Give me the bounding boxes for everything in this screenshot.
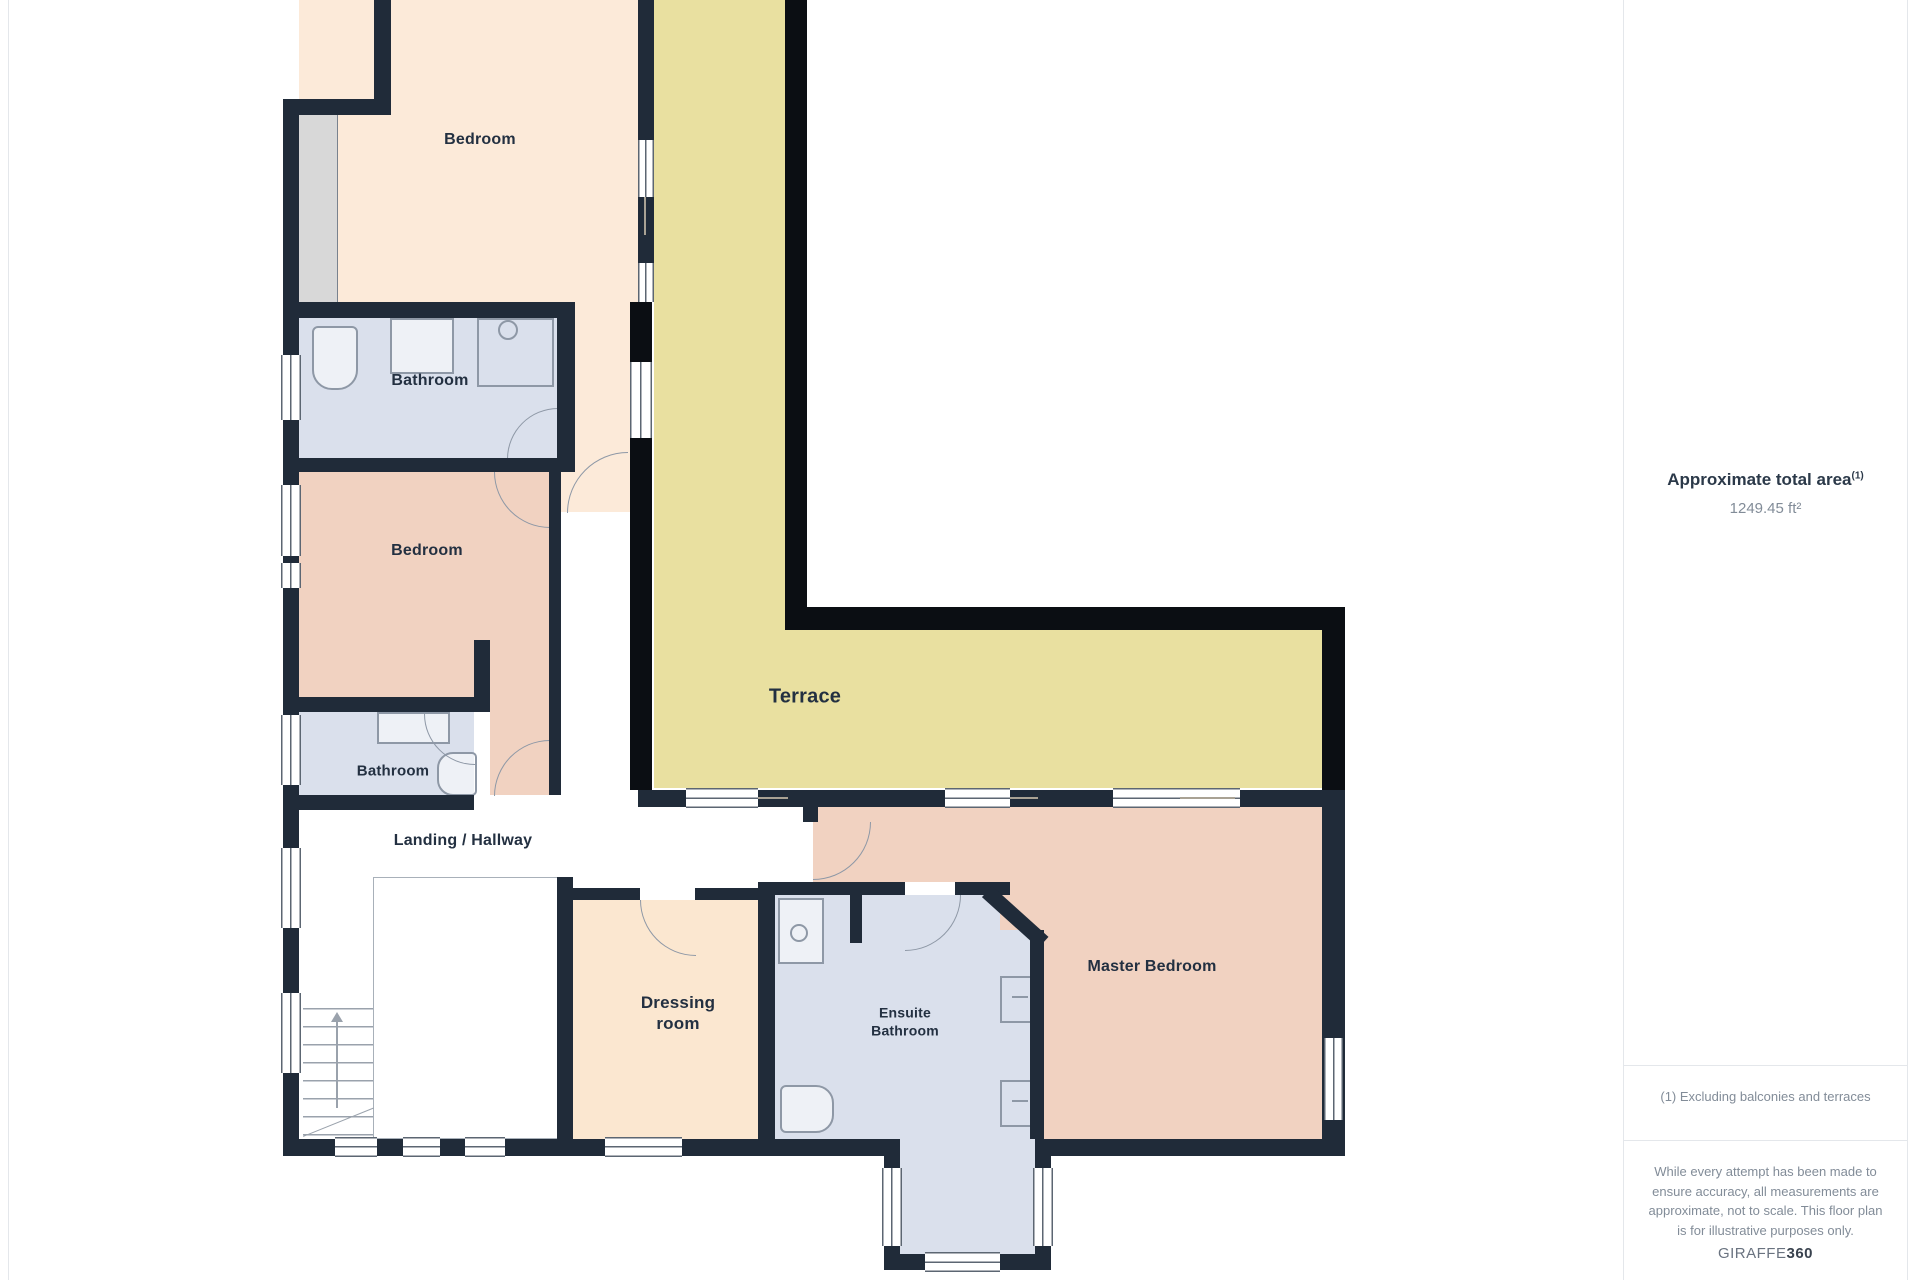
room-label-dressing-line1: Dressing <box>641 993 715 1012</box>
wall-segment <box>682 1139 884 1156</box>
window <box>686 788 758 808</box>
floorplan-page: { "sidebar": { "title": "Approximate tot… <box>0 0 1920 1280</box>
window <box>281 993 301 1073</box>
total-area-block: Approximate total area(1) 1249.45 ft² <box>1624 470 1907 517</box>
room-ensuite-bay <box>900 1139 1035 1254</box>
window <box>638 140 654 197</box>
wall-segment <box>283 302 575 318</box>
wall-segment <box>758 888 775 1139</box>
room-label-ensuite: Ensuite Bathroom <box>871 1005 939 1040</box>
staircase <box>303 1008 373 1137</box>
wall-segment <box>557 888 640 900</box>
window-sill-line <box>758 797 788 799</box>
wall-segment <box>955 882 1010 895</box>
wall-segment <box>474 640 490 712</box>
room-label-landing: Landing / Hallway <box>394 832 533 850</box>
room-label-dressing-line2: room <box>656 1014 699 1033</box>
total-area-title: Approximate total area(1) <box>1624 470 1907 490</box>
wall-segment <box>557 877 573 1139</box>
total-area-title-text: Approximate total area <box>1667 470 1851 489</box>
wall-segment <box>638 790 686 807</box>
window <box>1324 1038 1343 1120</box>
brand-name: GIRAFFE <box>1718 1245 1787 1262</box>
corridor <box>561 512 638 810</box>
terrace-wall <box>785 0 807 607</box>
window <box>335 1137 377 1157</box>
window <box>281 715 301 785</box>
wardrobe <box>299 115 338 302</box>
wall-segment <box>1030 930 1044 1139</box>
disclaimer: While every attempt has been made to ens… <box>1644 1162 1887 1240</box>
corridor <box>638 807 803 882</box>
cubicle-handle <box>1012 1100 1028 1102</box>
wall-segment <box>377 1139 403 1156</box>
wall-segment <box>283 99 391 115</box>
room-label-dressing: Dressing room <box>641 992 715 1035</box>
window <box>403 1137 440 1157</box>
window <box>281 355 301 420</box>
wall-segment <box>549 472 561 795</box>
total-area-superscript: (1) <box>1852 470 1864 481</box>
divider <box>1624 1140 1907 1141</box>
toilet-icon <box>780 1085 834 1133</box>
wall-segment <box>557 302 575 472</box>
stair-arrow-head <box>331 1012 343 1022</box>
wall-segment <box>818 790 945 807</box>
room-label-bathroom-1: Bathroom <box>391 372 468 390</box>
shower-head-icon <box>498 320 518 340</box>
wall-segment <box>283 1139 335 1156</box>
terrace-area <box>654 0 785 630</box>
window <box>925 1252 1000 1272</box>
wall-segment <box>283 697 490 712</box>
divider <box>1624 1065 1907 1066</box>
window <box>630 362 652 438</box>
wall-segment <box>850 895 862 943</box>
footnote: (1) Excluding balconies and terraces <box>1644 1087 1887 1107</box>
window <box>465 1137 505 1157</box>
wall-segment <box>758 882 905 895</box>
room-label-master: Master Bedroom <box>1087 958 1216 976</box>
toilet-icon <box>312 326 358 390</box>
window <box>1033 1168 1053 1246</box>
terrace-area <box>654 630 1322 788</box>
terrace-wall <box>785 607 1345 630</box>
wall-segment <box>695 888 758 900</box>
brand-logo: GIRAFFE360 <box>1624 1245 1907 1262</box>
wall-segment <box>505 1139 605 1156</box>
cubicle-handle <box>1012 996 1028 998</box>
window <box>281 848 301 928</box>
wall-segment <box>1044 1139 1322 1156</box>
room-master <box>1000 882 1322 930</box>
info-sidebar: Approximate total area(1) 1249.45 ft² (1… <box>1623 0 1908 1280</box>
brand-suffix: 360 <box>1786 1245 1813 1262</box>
stair-arrow <box>336 1022 338 1108</box>
window <box>281 563 301 588</box>
window <box>605 1137 682 1157</box>
room-label-bathroom-2: Bathroom <box>357 763 429 780</box>
window-sill-line <box>1010 797 1038 799</box>
sink-tap-icon <box>790 924 808 942</box>
room-label-bedroom-1: Bedroom <box>444 131 516 149</box>
room-bedroom-1 <box>299 0 639 302</box>
window-sill-line <box>644 197 646 235</box>
room-label-terrace: Terrace <box>769 686 841 709</box>
wall-segment <box>884 1254 925 1270</box>
room-label-ensuite-line1: Ensuite <box>879 1005 931 1021</box>
shower-cubicle-icon <box>1000 976 1032 1023</box>
wall-segment <box>283 458 575 472</box>
sink-icon <box>390 318 454 374</box>
room-label-ensuite-line2: Bathroom <box>871 1022 939 1038</box>
window <box>882 1168 902 1246</box>
wall-segment <box>1000 1254 1051 1270</box>
shower-cubicle-icon <box>1000 1080 1032 1127</box>
terrace-wall <box>1322 607 1345 790</box>
window <box>945 788 1010 808</box>
total-area-value: 1249.45 ft² <box>1624 500 1907 517</box>
wall-segment <box>1240 790 1322 807</box>
window <box>281 485 301 556</box>
wall-segment <box>283 795 474 810</box>
stair-void <box>373 877 559 1139</box>
room-bedroom-1-nook <box>575 302 638 472</box>
wall-segment <box>374 0 391 115</box>
door-jamb <box>803 790 818 822</box>
room-master <box>813 807 1322 882</box>
wall-segment <box>440 1139 465 1156</box>
window <box>638 263 654 302</box>
window-sill-line <box>1180 797 1235 799</box>
room-label-bedroom-2: Bedroom <box>391 542 463 560</box>
